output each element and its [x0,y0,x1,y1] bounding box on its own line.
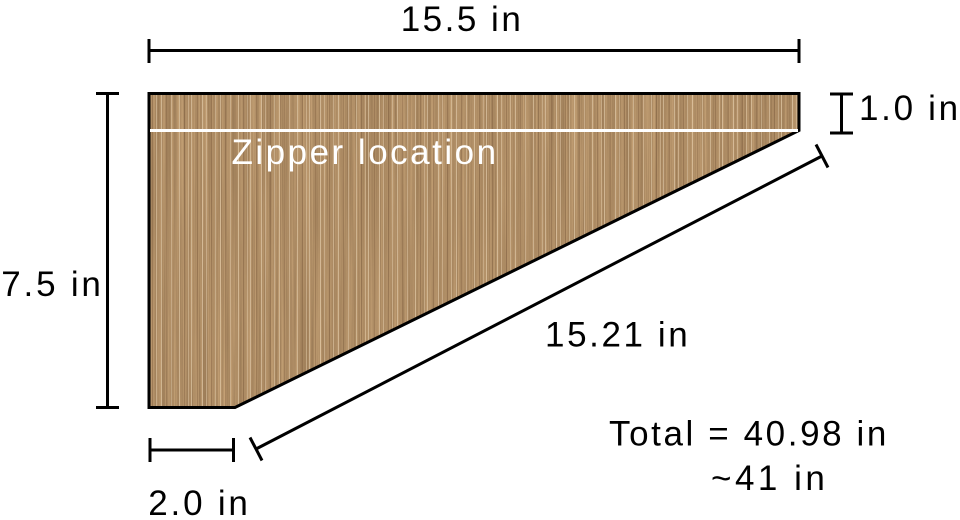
svg-text:Zipper location: Zipper location [232,133,499,172]
svg-text:2.0 in: 2.0 in [148,484,250,520]
svg-text:~41 in: ~41 in [711,459,828,498]
svg-text:15.5 in: 15.5 in [401,0,524,39]
svg-text:1.0 in: 1.0 in [859,89,960,128]
svg-text:15.21 in: 15.21 in [545,316,690,355]
svg-text:7.5 in: 7.5 in [1,265,103,304]
svg-text:Total = 40.98 in: Total = 40.98 in [609,415,889,454]
